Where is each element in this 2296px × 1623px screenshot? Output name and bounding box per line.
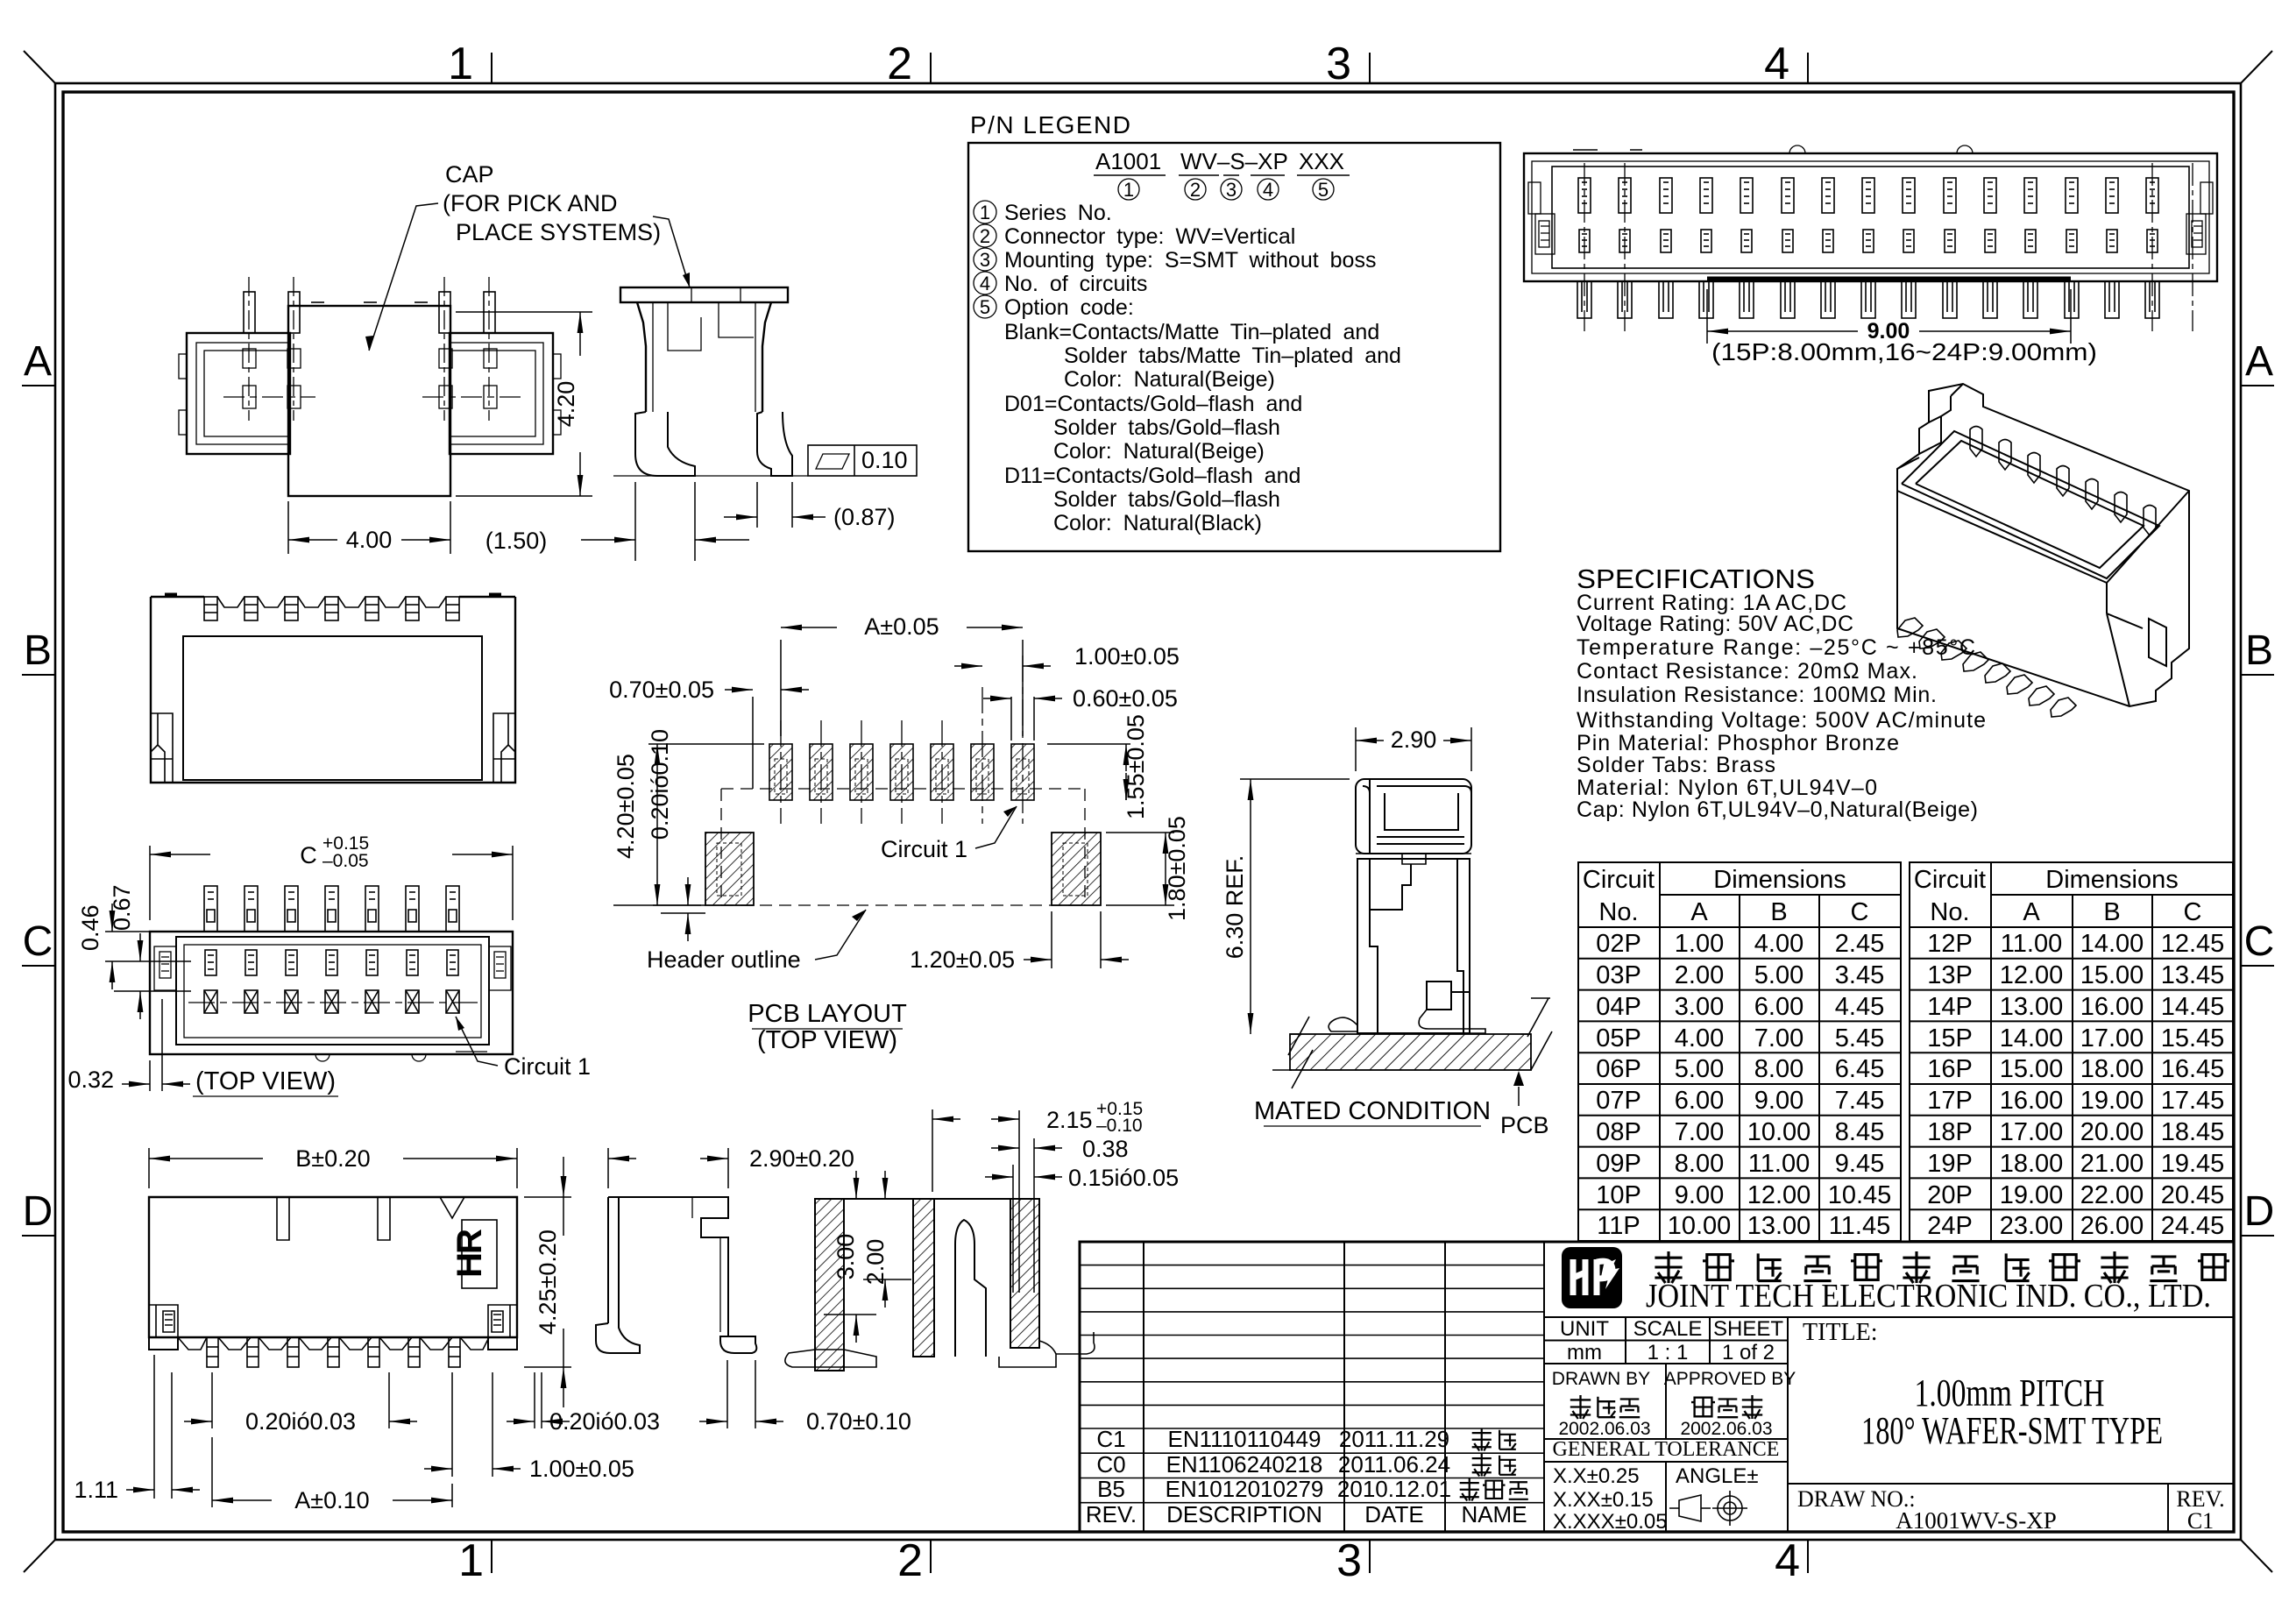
svg-text:C: C: [300, 842, 317, 868]
svg-text:12P: 12P: [1927, 930, 1973, 958]
svg-text:P/N LEGEND: P/N LEGEND: [970, 111, 1130, 138]
svg-text:PCB: PCB: [1500, 1112, 1549, 1138]
svg-text:5: 5: [1318, 179, 1329, 201]
svg-text:14.00: 14.00: [2080, 930, 2144, 958]
svg-text:MATED CONDITION: MATED CONDITION: [1254, 1097, 1491, 1125]
svg-text:2010.12.01: 2010.12.01: [1337, 1476, 1451, 1502]
svg-text:15.00: 15.00: [2000, 1055, 2064, 1083]
svg-text:5.00: 5.00: [1754, 961, 1803, 989]
svg-text:(TOP VIEW): (TOP VIEW): [195, 1067, 336, 1095]
svg-text:17.00: 17.00: [2080, 1024, 2144, 1052]
svg-text:5: 5: [980, 296, 990, 318]
svg-text:08P: 08P: [1596, 1118, 1641, 1146]
svg-text:Insulation Resistance: 100MΩ: Insulation Resistance: 100MΩ Min.: [1577, 683, 1937, 707]
svg-text:1.00±0.05: 1.00±0.05: [529, 1456, 634, 1482]
svg-text:04P: 04P: [1596, 993, 1641, 1021]
svg-text:B: B: [2103, 898, 2120, 926]
svg-text:X.X±0.25: X.X±0.25: [1553, 1464, 1640, 1488]
svg-text:Temperature Range: –25°C ~: Temperature Range: –25°C ~ +85°C: [1577, 635, 1975, 660]
svg-text:Cap: Nylon 6T,UL94V–0,Natura: Cap: Nylon 6T,UL94V–0,Natural(Beige): [1577, 797, 1978, 822]
svg-text:15.45: 15.45: [2161, 1024, 2225, 1052]
svg-text:CAP: CAP: [445, 161, 494, 188]
svg-text:No.: No.: [1930, 898, 1969, 926]
svg-text:B5: B5: [1097, 1476, 1125, 1502]
svg-text:1: 1: [448, 39, 473, 89]
svg-text:13.00: 13.00: [2000, 993, 2064, 1021]
svg-text:10.00: 10.00: [1668, 1212, 1732, 1240]
svg-text:24P: 24P: [1927, 1212, 1973, 1240]
svg-text:D: D: [23, 1188, 53, 1235]
svg-text:18P: 18P: [1927, 1118, 1973, 1146]
svg-text:1.20±0.05: 1.20±0.05: [910, 946, 1015, 973]
svg-text:DATE: DATE: [1364, 1501, 1423, 1527]
svg-text:Series No.: Series No.: [1004, 201, 1112, 225]
svg-text:10.45: 10.45: [1828, 1181, 1892, 1209]
svg-text:2011.11.29: 2011.11.29: [1339, 1426, 1449, 1452]
svg-text:No. of circuits: No. of circuits: [1004, 272, 1147, 296]
svg-text:NAME: NAME: [1461, 1501, 1527, 1527]
svg-text:SHEET: SHEET: [1713, 1317, 1783, 1341]
svg-text:17.45: 17.45: [2161, 1087, 2225, 1115]
svg-text:C0: C0: [1096, 1451, 1125, 1478]
svg-text:18.00: 18.00: [2080, 1055, 2144, 1083]
svg-text:UNIT: UNIT: [1560, 1317, 1609, 1341]
svg-text:DESCRIPTION: DESCRIPTION: [1166, 1501, 1322, 1527]
svg-text:8.45: 8.45: [1835, 1118, 1884, 1146]
svg-text:14.00: 14.00: [2000, 1024, 2064, 1052]
svg-text:23.00: 23.00: [2000, 1212, 2064, 1240]
svg-text:180° WAFER-SMT TYPE: 180° WAFER-SMT TYPE: [1861, 1409, 2163, 1452]
svg-text:0.20ió0.10: 0.20ió0.10: [647, 729, 673, 840]
svg-text:2002.06.03: 2002.06.03: [1680, 1419, 1772, 1439]
svg-text:16.45: 16.45: [2161, 1055, 2225, 1083]
svg-text:(TOP VIEW): (TOP VIEW): [757, 1026, 897, 1054]
svg-text:Voltage Rating: 50V AC,DC: Voltage Rating: 50V AC,DC: [1577, 612, 1853, 636]
svg-text:26.00: 26.00: [2080, 1212, 2144, 1240]
svg-text:7.45: 7.45: [1835, 1087, 1884, 1115]
svg-text:3.00: 3.00: [1675, 993, 1724, 1021]
svg-text:D11=Contacts/Gold–flash and: D11=Contacts/Gold–flash and: [1004, 464, 1300, 488]
svg-text:0.67: 0.67: [109, 884, 135, 931]
svg-text:16.00: 16.00: [2080, 993, 2144, 1021]
svg-text:A: A: [2245, 338, 2273, 385]
svg-text:10P: 10P: [1596, 1181, 1641, 1209]
svg-text:8.00: 8.00: [1754, 1055, 1803, 1083]
svg-text:D01=Contacts/Gold–flash and: D01=Contacts/Gold–flash and: [1004, 392, 1302, 416]
svg-text:Solder tabs/Gold–flash: Solder tabs/Gold–flash: [1053, 415, 1280, 440]
svg-text:DRAWN BY: DRAWN BY: [1552, 1369, 1650, 1389]
svg-text:17P: 17P: [1927, 1087, 1973, 1115]
svg-text:PLACE SYSTEMS): PLACE SYSTEMS): [456, 219, 661, 245]
svg-text:20.00: 20.00: [2080, 1118, 2144, 1146]
svg-text:1.55±0.05: 1.55±0.05: [1123, 714, 1149, 819]
svg-text:SCALE: SCALE: [1633, 1317, 1703, 1341]
svg-text:11.00: 11.00: [1748, 1150, 1810, 1178]
svg-text:03P: 03P: [1596, 961, 1641, 989]
svg-text:A: A: [24, 338, 52, 385]
svg-text:13.45: 13.45: [2161, 961, 2225, 989]
svg-text:–0.10: –0.10: [1096, 1116, 1143, 1136]
svg-text:5.45: 5.45: [1835, 1024, 1884, 1052]
svg-text:0.10: 0.10: [861, 447, 908, 473]
svg-text:2: 2: [897, 1535, 923, 1586]
svg-text:Connector type: WV=Vertical: Connector type: WV=Vertical: [1004, 224, 1295, 249]
svg-text:B: B: [1770, 898, 1787, 926]
svg-text:Blank=Contacts/Matte Tin–plat: Blank=Contacts/Matte Tin–plated and: [1004, 320, 1379, 344]
svg-text:C: C: [2184, 898, 2202, 926]
svg-text:APPROVED BY: APPROVED BY: [1664, 1369, 1796, 1389]
svg-text:EN1110110449: EN1110110449: [1168, 1426, 1322, 1452]
svg-text:X.XX±0.15: X.XX±0.15: [1553, 1488, 1654, 1512]
svg-text:4.20±0.05: 4.20±0.05: [613, 754, 639, 859]
svg-text:0.32: 0.32: [67, 1067, 114, 1093]
svg-text:07P: 07P: [1596, 1087, 1641, 1115]
svg-text:Circuit: Circuit: [1914, 866, 1986, 894]
svg-text:Color: Natural(Beige): Color: Natural(Beige): [1064, 367, 1275, 392]
svg-text:4: 4: [1263, 179, 1273, 201]
svg-text:1: 1: [458, 1535, 484, 1586]
svg-text:6.30 REF.: 6.30 REF.: [1222, 855, 1248, 960]
svg-text:19P: 19P: [1927, 1150, 1973, 1178]
svg-text:2: 2: [980, 225, 990, 247]
svg-text:EN1106240218: EN1106240218: [1166, 1451, 1323, 1478]
svg-text:10.00: 10.00: [1747, 1118, 1811, 1146]
svg-text:11P: 11P: [1597, 1212, 1640, 1240]
svg-text:15P: 15P: [1927, 1024, 1973, 1052]
svg-text:Contact Resistance: 20mΩ Ma: Contact Resistance: 20mΩ Max.: [1577, 659, 1917, 684]
svg-text:HR: HR: [450, 1229, 489, 1278]
svg-text:17.00: 17.00: [2000, 1118, 2064, 1146]
svg-text:GENERAL TOLERANCE: GENERAL TOLERANCE: [1553, 1438, 1780, 1461]
svg-text:16.00: 16.00: [2000, 1087, 2064, 1115]
svg-text:PCB LAYOUT: PCB LAYOUT: [748, 1000, 907, 1028]
svg-text:0.38: 0.38: [1082, 1136, 1129, 1162]
svg-text:Pin Material: Phosphor Bron: Pin Material: Phosphor Bronze: [1577, 731, 1899, 755]
svg-text:(15P:8.00mm,16~24P:9.00mm): (15P:8.00mm,16~24P:9.00mm): [1711, 338, 2097, 365]
svg-text:2.00: 2.00: [1675, 961, 1724, 989]
svg-text:2.00: 2.00: [862, 1239, 889, 1286]
svg-text:6.45: 6.45: [1835, 1055, 1884, 1083]
svg-text:1: 1: [980, 202, 990, 223]
svg-text:WV–S–XP: WV–S–XP: [1180, 148, 1288, 174]
svg-text:A1001WV-S-XP: A1001WV-S-XP: [1896, 1507, 2057, 1534]
svg-text:1.11: 1.11: [74, 1477, 118, 1503]
svg-text:7.00: 7.00: [1675, 1118, 1724, 1146]
svg-text:14P: 14P: [1927, 993, 1973, 1021]
svg-text:X.XXX±0.05: X.XXX±0.05: [1553, 1510, 1668, 1534]
svg-text:Solder tabs/Matte Tin–plated: Solder tabs/Matte Tin–plated and: [1064, 344, 1401, 368]
svg-text:C: C: [2244, 918, 2275, 965]
svg-text:JOINT TECH ELECTRONIC IND. CO.: JOINT TECH ELECTRONIC IND. CO., LTD.: [1646, 1278, 2211, 1315]
svg-text:3: 3: [1226, 179, 1237, 201]
svg-text:2.90±0.20: 2.90±0.20: [749, 1145, 854, 1172]
svg-text:(0.87): (0.87): [833, 504, 896, 530]
svg-text:2.45: 2.45: [1835, 930, 1884, 958]
svg-text:24.45: 24.45: [2161, 1212, 2225, 1240]
svg-text:0.70±0.10: 0.70±0.10: [806, 1408, 911, 1435]
svg-text:0.20ió0.03: 0.20ió0.03: [245, 1408, 356, 1435]
svg-text:4.25±0.20: 4.25±0.20: [535, 1230, 561, 1335]
svg-text:3: 3: [1326, 39, 1351, 89]
svg-text:12.45: 12.45: [2161, 930, 2225, 958]
svg-text:05P: 05P: [1596, 1024, 1641, 1052]
svg-text:13.00: 13.00: [1747, 1212, 1811, 1240]
svg-text:8.00: 8.00: [1675, 1150, 1724, 1178]
svg-text:2.90: 2.90: [1391, 726, 1437, 753]
svg-text:18.45: 18.45: [2161, 1118, 2225, 1146]
svg-text:4.45: 4.45: [1835, 993, 1884, 1021]
svg-text:0.60±0.05: 0.60±0.05: [1073, 685, 1178, 712]
svg-text:3.00: 3.00: [833, 1234, 859, 1280]
svg-text:7.00: 7.00: [1754, 1024, 1803, 1052]
svg-text:2002.06.03: 2002.06.03: [1558, 1419, 1650, 1439]
svg-text:09P: 09P: [1596, 1150, 1641, 1178]
svg-text:(FOR PICK AND: (FOR PICK AND: [443, 190, 618, 216]
svg-text:2.15: 2.15: [1046, 1107, 1093, 1133]
svg-text:0.15ió0.05: 0.15ió0.05: [1068, 1165, 1179, 1191]
svg-text:16P: 16P: [1927, 1055, 1973, 1083]
svg-text:0.20ió0.03: 0.20ió0.03: [549, 1408, 660, 1435]
svg-text:D: D: [2244, 1188, 2275, 1235]
svg-text:REV.: REV.: [1086, 1501, 1137, 1527]
svg-text:No.: No.: [1598, 898, 1638, 926]
svg-text:6.00: 6.00: [1675, 1087, 1724, 1115]
svg-text:9.45: 9.45: [1835, 1150, 1884, 1178]
svg-text:–0.05: –0.05: [322, 851, 369, 871]
svg-text:Solder tabs/Gold–flash: Solder tabs/Gold–flash: [1053, 487, 1280, 512]
svg-text:A: A: [2023, 898, 2040, 926]
svg-text:2011.06.24: 2011.06.24: [1338, 1451, 1450, 1478]
svg-text:A1001: A1001: [1095, 148, 1161, 174]
svg-text:15.00: 15.00: [2080, 961, 2144, 989]
svg-text:C: C: [1851, 898, 1869, 926]
svg-text:mm: mm: [1567, 1341, 1602, 1364]
svg-text:11.45: 11.45: [1829, 1212, 1890, 1240]
svg-text:4.20: 4.20: [553, 381, 579, 428]
svg-text:4: 4: [980, 273, 990, 294]
svg-text:1.80±0.05: 1.80±0.05: [1164, 816, 1190, 921]
svg-text:EN1012010279: EN1012010279: [1166, 1476, 1324, 1502]
svg-text:TITLE:: TITLE:: [1803, 1319, 1878, 1346]
svg-text:6.00: 6.00: [1754, 993, 1803, 1021]
svg-text:14.45: 14.45: [2161, 993, 2225, 1021]
svg-text:Option code:: Option code:: [1004, 295, 1134, 320]
svg-text:C: C: [23, 918, 53, 965]
svg-text:13P: 13P: [1927, 961, 1973, 989]
svg-text:0.46: 0.46: [77, 904, 103, 951]
svg-text:06P: 06P: [1596, 1055, 1641, 1083]
svg-text:1.00±0.05: 1.00±0.05: [1074, 643, 1180, 670]
svg-text:1 : 1: 1 : 1: [1648, 1341, 1689, 1364]
svg-text:4: 4: [1775, 1535, 1800, 1586]
svg-text:11.00: 11.00: [2001, 930, 2062, 958]
svg-text:C1: C1: [1096, 1426, 1125, 1452]
svg-text:1 of 2: 1 of 2: [1722, 1341, 1775, 1364]
svg-text:2: 2: [1190, 179, 1201, 201]
svg-text:5.00: 5.00: [1675, 1055, 1724, 1083]
svg-text:Color: Natural(Beige): Color: Natural(Beige): [1053, 439, 1265, 464]
svg-text:0.70±0.05: 0.70±0.05: [609, 677, 714, 703]
svg-text:22.00: 22.00: [2080, 1181, 2144, 1209]
svg-text:1: 1: [1123, 179, 1134, 201]
svg-text:SPECIFICATIONS: SPECIFICATIONS: [1577, 563, 1815, 594]
svg-text:XXX: XXX: [1299, 148, 1344, 174]
svg-text:B: B: [24, 627, 52, 674]
svg-text:4.00: 4.00: [1754, 930, 1803, 958]
svg-text:A: A: [1690, 898, 1708, 926]
svg-text:C1: C1: [2187, 1508, 2214, 1534]
svg-text:12.00: 12.00: [2000, 961, 2064, 989]
svg-text:Circuit: Circuit: [1583, 866, 1655, 894]
svg-text:ANGLE±: ANGLE±: [1676, 1464, 1759, 1488]
svg-text:4: 4: [1764, 39, 1789, 89]
svg-text:Color: Natural(Black): Color: Natural(Black): [1053, 511, 1262, 535]
svg-text:Header outline: Header outline: [647, 946, 801, 973]
svg-text:19.00: 19.00: [2000, 1181, 2064, 1209]
svg-text:12.00: 12.00: [1747, 1181, 1811, 1209]
svg-text:Mounting type: S=SMT withou: Mounting type: S=SMT without boss: [1004, 248, 1376, 273]
svg-text:Dimensions: Dimensions: [2045, 866, 2179, 894]
svg-text:3.45: 3.45: [1835, 961, 1884, 989]
svg-text:3: 3: [1336, 1535, 1362, 1586]
svg-text:Circuit 1: Circuit 1: [881, 836, 967, 862]
svg-text:2: 2: [887, 39, 912, 89]
svg-text:3: 3: [980, 249, 990, 271]
svg-text:21.00: 21.00: [2080, 1150, 2144, 1178]
svg-text:B: B: [2245, 627, 2273, 674]
svg-text:19.45: 19.45: [2161, 1150, 2225, 1178]
svg-text:9.00: 9.00: [1675, 1181, 1724, 1209]
svg-text:1.00mm PITCH: 1.00mm PITCH: [1915, 1371, 2105, 1414]
svg-text:4.00: 4.00: [1675, 1024, 1724, 1052]
svg-text:20.45: 20.45: [2161, 1181, 2225, 1209]
svg-text:A±0.05: A±0.05: [864, 613, 939, 640]
svg-text:1.00: 1.00: [1675, 930, 1724, 958]
svg-text:(1.50): (1.50): [485, 528, 548, 554]
svg-text:Material: Nylon 6T,UL94V–0: Material: Nylon 6T,UL94V–0: [1577, 776, 1877, 800]
svg-text:19.00: 19.00: [2080, 1087, 2144, 1115]
svg-text:18.00: 18.00: [2000, 1150, 2064, 1178]
svg-text:02P: 02P: [1596, 930, 1641, 958]
svg-text:4.00: 4.00: [346, 527, 393, 553]
svg-text:A±0.10: A±0.10: [294, 1487, 369, 1513]
svg-text:Circuit 1: Circuit 1: [504, 1053, 591, 1080]
svg-text:Withstanding Voltage: 500V: Withstanding Voltage: 500V AC/minute: [1577, 708, 1986, 733]
svg-text:B±0.20: B±0.20: [295, 1145, 370, 1172]
svg-text:20P: 20P: [1927, 1181, 1973, 1209]
svg-text:9.00: 9.00: [1754, 1087, 1803, 1115]
svg-text:Dimensions: Dimensions: [1713, 866, 1846, 894]
